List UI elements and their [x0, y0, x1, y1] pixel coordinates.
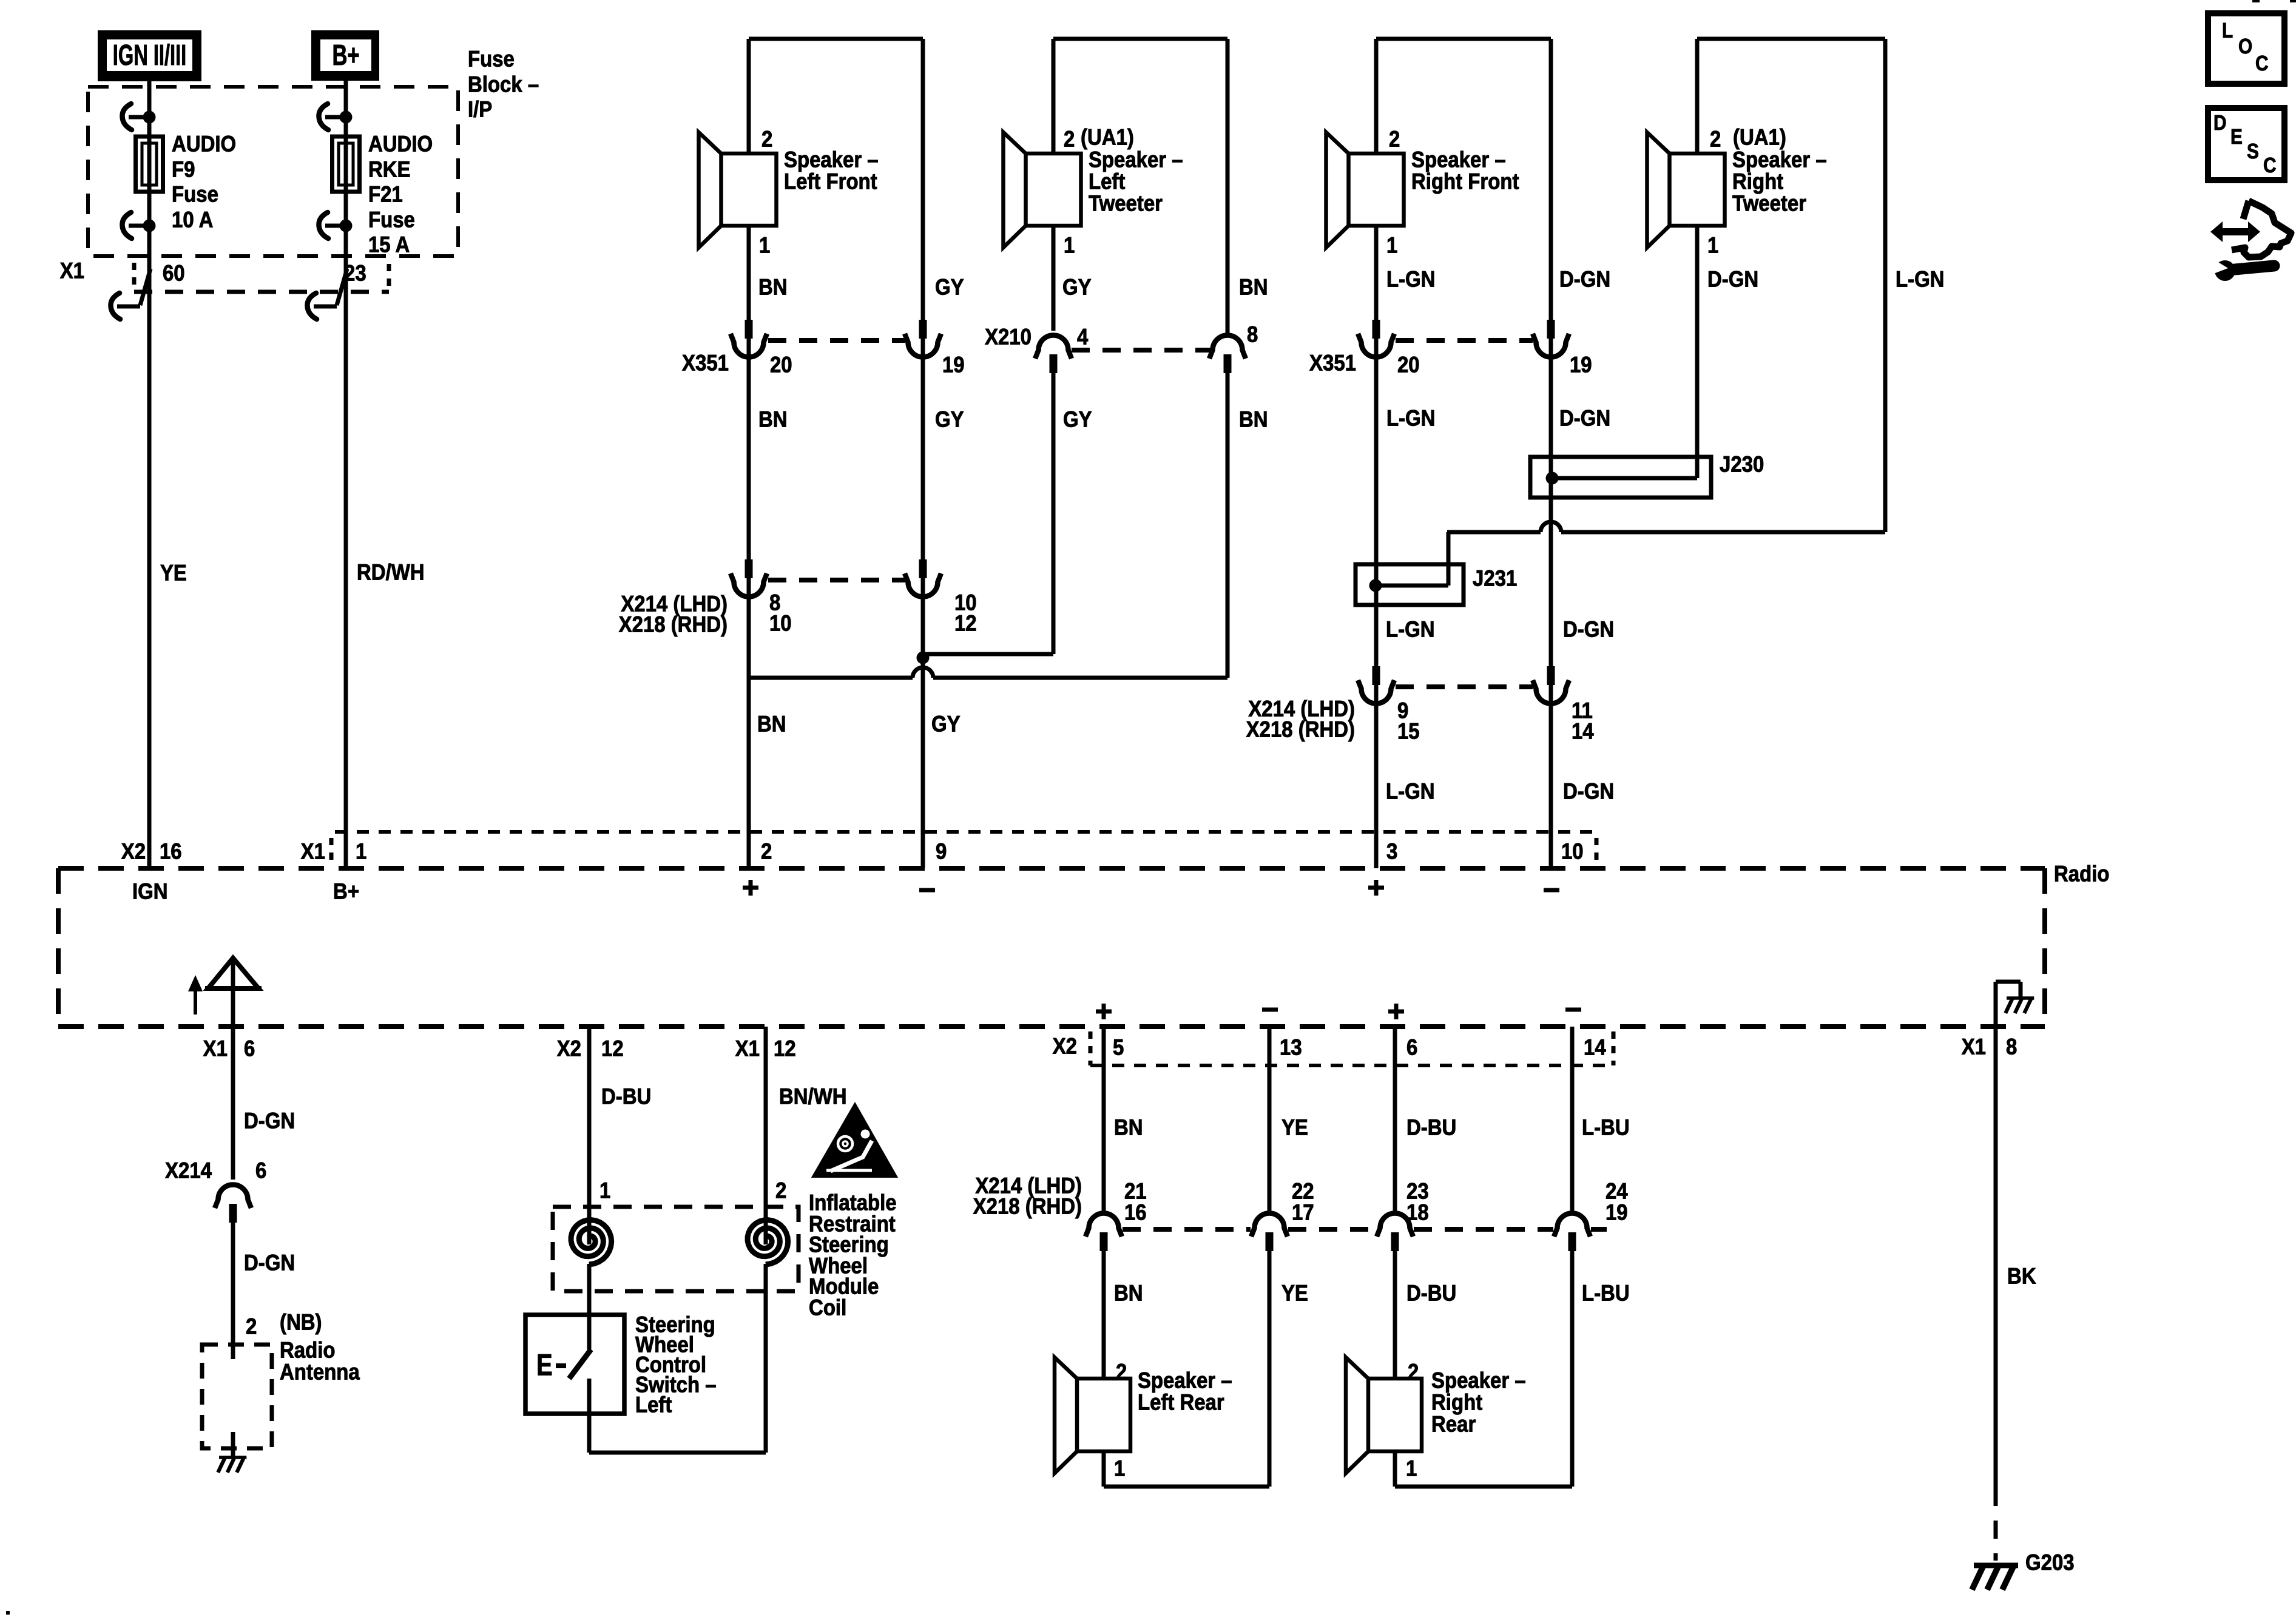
svg-text:L-GN: L-GN	[1386, 406, 1435, 431]
svg-text:2: 2	[1116, 1360, 1127, 1385]
svg-text:16: 16	[160, 839, 182, 864]
svg-text:13: 13	[1280, 1035, 1302, 1060]
svg-text:1: 1	[1707, 233, 1718, 258]
svg-text:D-GN: D-GN	[244, 1109, 295, 1133]
svg-text:X1: X1	[203, 1036, 228, 1061]
svg-text:Right Front: Right Front	[1411, 169, 1519, 194]
svg-text:1: 1	[1406, 1456, 1417, 1481]
svg-text:X210: X210	[985, 325, 1032, 349]
svg-text:BN: BN	[1114, 1281, 1143, 1306]
svg-text:D-BU: D-BU	[1406, 1281, 1456, 1306]
svg-text:Tweeter: Tweeter	[1089, 191, 1163, 216]
svg-text:2: 2	[761, 839, 772, 864]
svg-text:B+: B+	[333, 879, 359, 904]
svg-text:17: 17	[1292, 1200, 1314, 1225]
svg-text:X351: X351	[1309, 351, 1356, 376]
svg-text:X1: X1	[60, 258, 84, 283]
svg-text:2: 2	[1064, 127, 1075, 152]
svg-text:2: 2	[1389, 127, 1400, 152]
svg-text:L-GN: L-GN	[1896, 267, 1944, 292]
svg-text:(UA1): (UA1)	[1081, 125, 1134, 150]
svg-text:X1: X1	[735, 1036, 760, 1061]
svg-text:S: S	[2247, 140, 2259, 163]
svg-text:2: 2	[246, 1314, 257, 1339]
svg-text:Right: Right	[1732, 169, 1783, 194]
svg-text:GY: GY	[1063, 407, 1092, 432]
svg-text:AUDIO: AUDIO	[172, 132, 236, 157]
svg-text:X218 (RHD): X218 (RHD)	[973, 1194, 1082, 1219]
svg-text:IGN II/III: IGN II/III	[113, 39, 187, 72]
svg-text:X1: X1	[301, 839, 325, 864]
svg-text:L-GN: L-GN	[1386, 267, 1435, 292]
svg-text:J231: J231	[1473, 566, 1517, 591]
svg-text:BN: BN	[1239, 275, 1268, 300]
svg-text:L: L	[2222, 19, 2233, 42]
svg-text:8: 8	[2006, 1035, 2017, 1059]
svg-text:X218 (RHD): X218 (RHD)	[1246, 717, 1355, 742]
svg-text:2: 2	[761, 127, 772, 152]
svg-text:GY: GY	[931, 712, 961, 737]
svg-text:RD/WH: RD/WH	[357, 560, 425, 585]
svg-text:YE: YE	[1281, 1115, 1308, 1140]
svg-text:19: 19	[1570, 353, 1592, 377]
svg-text:20: 20	[770, 353, 792, 377]
svg-text:12: 12	[774, 1036, 796, 1061]
svg-text:O: O	[2238, 35, 2252, 58]
svg-text:D-BU: D-BU	[1406, 1115, 1456, 1140]
svg-text:E: E	[536, 1348, 553, 1382]
svg-text:Speaker –: Speaker –	[1732, 147, 1827, 172]
svg-text:Speaker –: Speaker –	[1411, 147, 1506, 172]
svg-text:X2: X2	[1053, 1034, 1077, 1059]
svg-text:10 A: 10 A	[172, 208, 213, 232]
svg-text:YE: YE	[1281, 1281, 1308, 1306]
svg-text:10: 10	[769, 611, 792, 636]
svg-text:Speaker –: Speaker –	[1431, 1368, 1526, 1393]
svg-text:Left: Left	[1089, 169, 1125, 194]
svg-text:6: 6	[244, 1036, 255, 1061]
svg-text:Rear: Rear	[1431, 1412, 1476, 1437]
svg-text:X351: X351	[682, 351, 729, 376]
svg-text:(NB): (NB)	[280, 1310, 322, 1335]
svg-text:D-GN: D-GN	[1707, 267, 1758, 292]
svg-text:AUDIO: AUDIO	[368, 132, 433, 157]
svg-text:Radio: Radio	[2054, 862, 2109, 886]
svg-text:E: E	[2230, 125, 2243, 149]
svg-text:Coil: Coil	[809, 1295, 846, 1320]
svg-text:8: 8	[1247, 322, 1258, 347]
svg-text:14: 14	[1572, 719, 1594, 744]
svg-text:10: 10	[1561, 839, 1584, 864]
svg-text:Speaker –: Speaker –	[1138, 1368, 1232, 1393]
svg-text:D-GN: D-GN	[244, 1251, 295, 1275]
svg-text:RKE: RKE	[368, 157, 411, 182]
svg-text:Left Rear: Left Rear	[1138, 1390, 1224, 1415]
svg-text:Left: Left	[635, 1393, 672, 1417]
svg-text:3: 3	[1386, 839, 1397, 864]
svg-text:X218 (RHD): X218 (RHD)	[619, 612, 728, 637]
svg-text:1: 1	[599, 1178, 610, 1203]
svg-text:1: 1	[759, 233, 770, 258]
svg-text:GY: GY	[935, 275, 964, 300]
svg-text:B+: B+	[332, 39, 359, 72]
svg-text:Fuse: Fuse	[468, 47, 515, 72]
svg-text:19: 19	[1606, 1200, 1628, 1225]
svg-text:2: 2	[1710, 127, 1721, 152]
svg-text:C: C	[2263, 154, 2276, 177]
svg-text:BN: BN	[1239, 407, 1268, 432]
svg-text:X2: X2	[557, 1036, 581, 1061]
svg-text:D-GN: D-GN	[1559, 406, 1610, 431]
svg-text:GY: GY	[935, 407, 964, 432]
svg-text:X1: X1	[1962, 1035, 1986, 1059]
svg-text:Antenna: Antenna	[280, 1360, 360, 1385]
svg-text:1: 1	[1064, 233, 1075, 258]
svg-text:15 A: 15 A	[368, 232, 410, 257]
svg-text:BN/WH: BN/WH	[779, 1084, 847, 1109]
svg-text:12: 12	[954, 611, 977, 636]
svg-text:Fuse: Fuse	[172, 182, 218, 207]
svg-text:L-BU: L-BU	[1582, 1115, 1630, 1140]
svg-text:C: C	[2255, 52, 2268, 75]
svg-text:D-GN: D-GN	[1563, 779, 1614, 804]
svg-text:15: 15	[1397, 719, 1420, 744]
svg-text:19: 19	[942, 353, 965, 377]
svg-text:6: 6	[1406, 1035, 1417, 1060]
svg-text:Radio: Radio	[280, 1338, 335, 1363]
svg-text:5: 5	[1113, 1035, 1124, 1060]
svg-text:Speaker –: Speaker –	[784, 147, 879, 172]
svg-text:L-GN: L-GN	[1386, 779, 1434, 804]
svg-text:F21: F21	[368, 182, 403, 207]
svg-text:6: 6	[255, 1158, 266, 1183]
svg-text:1: 1	[1386, 233, 1397, 258]
svg-text:I/P: I/P	[468, 97, 492, 122]
svg-text:20: 20	[1397, 353, 1420, 377]
svg-text:2: 2	[1408, 1360, 1419, 1385]
svg-text:12: 12	[601, 1036, 624, 1061]
svg-text:Fuse: Fuse	[368, 208, 415, 232]
svg-text:YE: YE	[160, 561, 187, 586]
svg-text:BN: BN	[757, 712, 786, 737]
svg-text:Block –: Block –	[468, 72, 539, 97]
svg-text:D-GN: D-GN	[1559, 267, 1610, 292]
svg-text:BN: BN	[758, 275, 788, 300]
svg-text:GY: GY	[1062, 275, 1092, 300]
svg-text:L-GN: L-GN	[1386, 617, 1434, 642]
svg-text:D: D	[2213, 111, 2226, 135]
svg-text:60: 60	[163, 261, 185, 286]
svg-text:Speaker –: Speaker –	[1089, 147, 1183, 172]
svg-text:16: 16	[1124, 1200, 1147, 1225]
svg-text:1: 1	[1114, 1456, 1125, 1481]
svg-text:BN: BN	[758, 407, 788, 432]
svg-text:4: 4	[1077, 325, 1089, 349]
svg-text:BN: BN	[1114, 1115, 1143, 1140]
svg-text:Tweeter: Tweeter	[1732, 191, 1806, 216]
svg-text:X2: X2	[121, 839, 146, 864]
svg-text:L-BU: L-BU	[1582, 1281, 1630, 1306]
svg-text:Left Front: Left Front	[784, 169, 877, 194]
svg-text:D-BU: D-BU	[601, 1084, 651, 1109]
svg-text:9: 9	[936, 839, 947, 864]
svg-text:Right: Right	[1431, 1390, 1482, 1415]
svg-text:BK: BK	[2007, 1264, 2036, 1289]
svg-text:(UA1): (UA1)	[1733, 125, 1786, 150]
svg-text:14: 14	[1584, 1035, 1606, 1060]
svg-text:G203: G203	[2025, 1550, 2075, 1575]
svg-text:2: 2	[775, 1178, 786, 1203]
svg-text:D-GN: D-GN	[1563, 617, 1614, 642]
svg-text:X214: X214	[165, 1158, 212, 1183]
svg-text:F9: F9	[172, 157, 195, 182]
svg-text:IGN: IGN	[132, 879, 168, 904]
svg-text:1: 1	[356, 839, 366, 864]
svg-text:J230: J230	[1720, 452, 1764, 477]
